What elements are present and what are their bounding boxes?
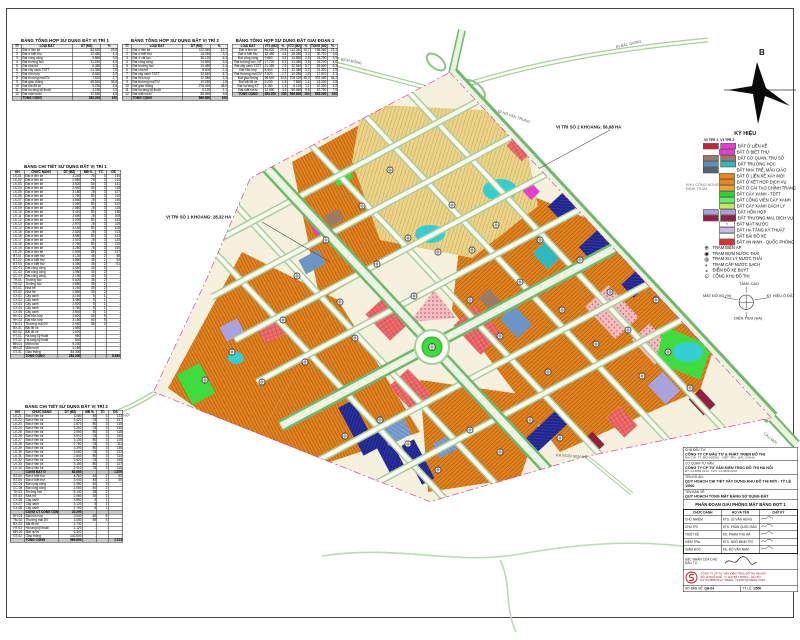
summary-table-2-title: BẢNG TỔNG HỢP SỬ DỤNG ĐẤT VỊ TRÍ 2 (122, 38, 228, 43)
area-annotation-2: VỊ TRÍ SỐ 2 KHOẢNG: 56,98 HA (556, 125, 621, 130)
data-table: KHCHỨC NĂNGDT (M2)MĐ %TCDSLK-01Đất ở liề… (10, 170, 121, 359)
title-block-investor: CHỦ ĐẦU TƯ: CÔNG TY CP ĐẦU TƯ & PHÁT TRI… (684, 448, 798, 462)
legend-item-label: ĐẤT CÂY XANH - TDTT (737, 192, 781, 196)
sign-row: GIÁM ĐỐCKS. ĐỖ VĂN NAM (684, 546, 798, 554)
table-row: TỔNG CỘNG569.800100 (122, 96, 228, 100)
legend-swatch-vt1 (703, 209, 719, 215)
legend-symbol-item: ⊙CỔNG KHU ĐÔ THỊ (703, 274, 799, 280)
summary-table-1-title: BẢNG TỔNG HỢP SỬ DỤNG ĐẤT VỊ TRÍ 1 (12, 38, 118, 43)
legend-item: ĐẤT CÔNG VIÊN CÂY XANH (703, 197, 799, 203)
detail-table-2-title: BẢNG CHI TIẾT SỬ DỤNG ĐẤT VỊ TRÍ 2 (10, 404, 123, 409)
legend-item: ĐẤT Ở KẾT HỢP DỊCH VỤ (703, 179, 799, 185)
block-key-left: MẬT ĐỘ XD (%) (703, 294, 731, 298)
legend-column-headers: VỊ TRÍ 1 VỊ TRÍ 2 (703, 138, 799, 142)
legend-item-label: ĐẤT CÔNG VIÊN CÂY XANH (737, 198, 791, 202)
central-roundabout (415, 330, 449, 364)
signature-icon (759, 531, 797, 539)
title-block-main-title: PHÂN ĐOẠN GIẢI PHÓNG MẶT BẰNG ĐỢT 1 (684, 500, 798, 510)
table-row: TỔNG CỘNG283.200100 (12, 96, 118, 100)
signature-icon (759, 523, 797, 531)
sign-row: CHỦ TRÌKTS. TRẦN QUỐC BẢO (684, 523, 798, 531)
legend-swatch-vt2 (720, 155, 736, 161)
legend-swatch-vt2 (720, 161, 736, 167)
stamp-label: XÁC NHẬN CỦA CHỦ ĐẦU TƯ (685, 558, 720, 565)
summary-table-3: BẢNG TỔNG HỢP SỬ DỤNG ĐẤT GIAI ĐOẠN 1 LO… (232, 38, 338, 97)
legend-item-label: ĐẤT Ở KẾT HỢP DỊCH VỤ (737, 180, 787, 184)
legend-col1-header: VỊ TRÍ 1 (703, 138, 719, 142)
legend-swatch-vt1 (703, 204, 717, 209)
legend-swatch-vt2: ≈ (719, 221, 735, 227)
legend-swatch-vt2 (719, 227, 735, 233)
data-table: TTLOẠI ĐẤTDT (M2)%1Đất ở liền kề84.62029… (12, 44, 118, 101)
legend-symbol-label: CỔNG KHU ĐÔ THỊ (713, 274, 750, 278)
legend-swatch-vt1 (703, 155, 719, 161)
legend: KÝ HIỆU VỊ TRÍ 1 VỊ TRÍ 2 ĐẤT Ở LIỀN KỀĐ… (703, 130, 799, 321)
stamp-area: XÁC NHẬN CỦA CHỦ ĐẦU TƯ (684, 554, 798, 570)
legend-item: ĐẤT NHÀ TRẺ, MẪU GIÁO (703, 167, 799, 173)
drawing-name: QUY HOẠCH TỔNG MẶT BẰNG SỬ DỤNG ĐẤT (685, 494, 796, 499)
legend-swatch-vt2 (719, 149, 735, 155)
summary-table-1: BẢNG TỔNG HỢP SỬ DỤNG ĐẤT VỊ TRÍ 1 TTLOẠ… (12, 38, 118, 101)
block-key-right: KÝ HIỆU Ô ĐẤT (767, 294, 795, 298)
legend-item-label: ĐẤT BÃI ĐỖ XE (737, 234, 767, 238)
block-key-bottom: DIỆN TÍCH (HA) (734, 317, 762, 321)
sign-row: THIẾT KẾKS. PHẠM THU HÀ (684, 531, 798, 539)
stamp-signature (723, 556, 758, 568)
legend-item: ĐẤT AN NINH - QUỐC PHÒNG (703, 239, 799, 245)
title-block: CHỦ ĐẦU TƯ: CÔNG TY CP ĐẦU TƯ & PHÁT TRI… (683, 447, 798, 592)
legend-item: ĐẤT CÂY XANH CÁCH LY (703, 203, 799, 209)
legend-swatch-vt1 (703, 192, 717, 197)
legend-block-key: TẦNG CAO MẬT ĐỘ XD (%) KÝ HIỆU Ô ĐẤT DIỆ… (703, 283, 799, 321)
drawing-number-row: SỐ BẢN VẼ: QH-04 TỶ LỆ: 1/500 (684, 586, 798, 592)
legend-swatch-vt1 (703, 215, 719, 221)
legend-item: ĐẤT THƯƠNG MẠI, DỊCH VỤ (703, 215, 799, 221)
detail-table-2: BẢNG CHI TIẾT SỬ DỤNG ĐẤT VỊ TRÍ 2 KHCHỨ… (10, 404, 123, 543)
legend-swatch-vt2 (719, 179, 735, 185)
legend-symbol-label: TRẠM BIẾN ÁP (713, 246, 742, 250)
legend-swatch-vt2 (720, 168, 734, 173)
legend-item-label: ĐẤT NHÀ TRẺ, MẪU GIÁO (737, 168, 787, 172)
legend-swatch-vt1 (703, 143, 719, 149)
title-block-project: TÊN ĐỒ ÁN: QUY HOẠCH CHI TIẾT XÂY DỰNG K… (684, 475, 798, 490)
legend-swatch-vt1 (703, 150, 717, 155)
legend-item: ĐẤT HẠ TẦNG KỸ THUẬT (703, 227, 799, 233)
summary-table-3-title: BẢNG TỔNG HỢP SỬ DỤNG ĐẤT GIAI ĐOẠN 1 (232, 38, 338, 43)
legend-swatch-vt2 (719, 239, 735, 245)
legend-item-label: ĐẤT CƠ QUAN, TRỤ SỞ (738, 156, 785, 160)
legend-symbol-label: TRẠM XỬ LÝ NƯỚC THẢI (713, 257, 762, 261)
legend-symbols: ⊕TRẠM BIẾN ÁP◉TRẠM BƠM NƯỚC THẢI◍TRẠM XỬ… (703, 245, 799, 279)
table-row: TỔNG CỘNG569.8002.114 (10, 538, 123, 542)
data-table: LOẠI ĐẤTVT1 (M2)%VT2 (M2)%TỔNG (M2)%Đất … (232, 44, 338, 97)
legend-item-label: ĐẤT THƯƠNG MẠI, DỊCH VỤ (738, 216, 793, 220)
legend-symbol-label: ĐIỂM ĐỖ XE BUÝT (713, 269, 749, 273)
legend-swatch-vt2 (719, 191, 735, 197)
legend-item-label: ĐẤT HỖN HỢP (738, 210, 767, 214)
legend-swatch-vt1 (703, 228, 717, 233)
legend-item: ĐẤT CƠ QUAN, TRỤ SỞ (703, 155, 799, 161)
sign-row: KIỂM TRAKTS. NGÔ MINH TRÍ (684, 538, 798, 546)
sign-row: CHỦ NHIỆMKTS. LÊ VĂN HÙNG (684, 516, 798, 524)
data-table: TTLOẠI ĐẤTDT (M2)%1Đất ở liền kề112.3401… (122, 44, 228, 101)
detail-table-1: BẢNG CHI TIẾT SỬ DỤNG ĐẤT VỊ TRÍ 1 KHCHỨ… (10, 164, 121, 359)
company-address-lines: CÔNG TY CP TƯ VẤN KIẾN TRÚC ĐÔ THỊ HÀ NỘ… (701, 573, 766, 583)
legend-swatch-vt2 (720, 209, 736, 215)
legend-swatch-vt2 (720, 143, 736, 149)
legend-swatch-vt1 (703, 167, 719, 173)
detail-table-1-title: BẢNG CHI TIẾT SỬ DỤNG ĐẤT VỊ TRÍ 1 (10, 164, 121, 169)
consultant-sub: ĐT: 04.3856.2214 - FAX: 04.3856.2215 (685, 470, 796, 473)
legend-swatch-vt1 (703, 222, 717, 227)
legend-item-label: ĐẤT AN NINH - QUỐC PHÒNG (737, 240, 795, 244)
legend-item-label: ĐẤT Ở LIỀN KỀ XÂY MỚI (737, 174, 785, 178)
legend-swatch-vt2 (719, 173, 735, 179)
legend-swatch-vt1 (703, 180, 717, 185)
signature-icon (759, 546, 797, 554)
legend-item-label: ĐẤT Ở CẢI TẠO CHỈNH TRANG (737, 186, 796, 190)
area-annotation-1: VỊ TRÍ SỐ 1 KHOẢNG: 28,32 HA (166, 215, 231, 220)
north-label-svg: B (759, 48, 765, 57)
legend-swatch-vt2 (719, 197, 735, 203)
plan-sheet: { "sheet": {"note_left": "QUY HOẠCH CHI … (0, 0, 800, 640)
signature-table: CHỨC DANHHỌ VÀ TÊNCHỮ KÝCHỦ NHIỆMKTS. LÊ… (684, 510, 798, 555)
legend-swatch-vt2 (719, 185, 735, 191)
project-name: QUY HOẠCH CHI TIẾT XÂY DỰNG KHU ĐÔ THỊ M… (685, 479, 796, 488)
legend-col2-header: VỊ TRÍ 2 (719, 138, 735, 142)
legend-symbol-label: TRẠM BƠM NƯỚC THẢI (713, 252, 760, 256)
legend-item-label: ĐẤT Ở BIỆT THỰ (737, 150, 770, 154)
legend-swatch-vt1 (703, 186, 717, 191)
drawing-no: SỐ BẢN VẼ: QH-04 (684, 586, 741, 592)
summary-table-2: BẢNG TỔNG HỢP SỬ DỤNG ĐẤT VỊ TRÍ 2 TTLOẠ… (122, 38, 228, 101)
signature-icon (759, 538, 797, 546)
legend-swatch-vt2 (720, 215, 736, 221)
legend-symbol-icon: ⊙ (703, 274, 710, 279)
legend-swatch-vt1 (703, 234, 717, 239)
legend-item: ĐẤT Ở LIỀN KỀ XÂY MỚI (703, 173, 799, 179)
legend-swatch-vt2 (719, 203, 735, 209)
legend-swatch-vt1 (703, 174, 717, 179)
table-row: TỔNG CỘNG283.200100569.800100853.000100 (232, 92, 338, 96)
legend-item-label: ĐẤT MẶT NƯỚC (737, 222, 769, 226)
block-key-top: TẦNG CAO (739, 282, 759, 286)
data-table: KHCHỨC NĂNGDT (M2)MĐ %TCDSLK-21Đất ở liề… (10, 410, 123, 543)
legend-swatch-vt2 (719, 233, 735, 239)
drawing-scale: TỶ LỆ: 1/500 (741, 586, 798, 592)
title-block-drawing: TÊN BẢN VẼ: QUY HOẠCH TỔNG MẶT BẰNG SỬ D… (684, 490, 798, 501)
legend-swatch-vt1 (703, 198, 717, 203)
company-logo-row: CÔNG TY CP TƯ VẤN KIẾN TRÚC ĐÔ THỊ HÀ NỘ… (684, 570, 798, 586)
company-address-line: ĐT: 04.3856.2214 * EMAIL: TVKTDT@GMAIL.C… (701, 579, 766, 582)
title-block-consultant: CƠ QUAN TƯ VẤN: CÔNG TY CP TƯ VẤN KIẾN T… (684, 461, 798, 475)
legend-title: KÝ HIỆU (734, 130, 799, 136)
legend-item-label: ĐẤT TRƯỜNG HỌC (738, 162, 776, 166)
legend-symbol-label: TRẠM CẤP NƯỚC SẠCH (713, 263, 760, 267)
investor-sub: ĐỊA CHỈ: TT. BÍCH ĐỘNG - VIỆT YÊN - BẮC … (685, 457, 796, 460)
table-row: TỔNG CỘNG283.2008.640 (10, 354, 121, 358)
leader-line-area2 (540, 130, 610, 168)
legend-item-label: ĐẤT Ở LIỀN KỀ (738, 144, 767, 148)
legend-item-label: ĐẤT HẠ TẦNG KỸ THUẬT (737, 228, 785, 232)
north-arrow-icon: B (724, 48, 796, 124)
legend-item-label: ĐẤT CÂY XANH CÁCH LY (737, 204, 786, 208)
legend-swatch-vt1 (703, 161, 719, 167)
legend-item: ĐẤT Ở CẢI TẠO CHỈNH TRANG (703, 185, 799, 191)
signature-icon (759, 516, 797, 524)
legend-items: ĐẤT Ở LIỀN KỀĐẤT Ở BIỆT THỰĐẤT CƠ QUAN, … (703, 143, 799, 245)
company-emblem-icon (685, 571, 698, 584)
